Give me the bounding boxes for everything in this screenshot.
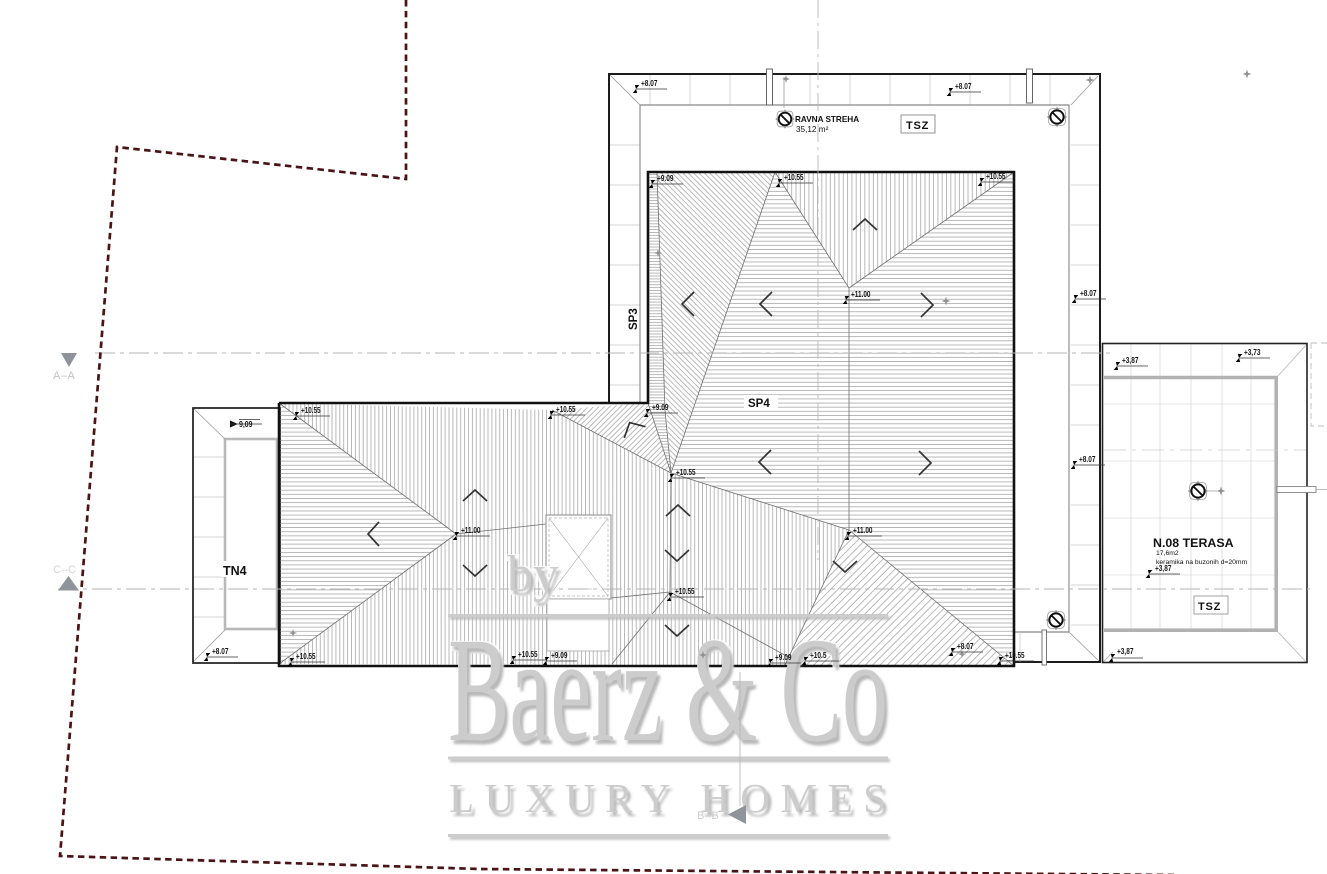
svg-text:+10.55: +10.55: [301, 406, 321, 415]
svg-text:A–A: A–A: [53, 370, 75, 382]
svg-text:9,09: 9,09: [239, 420, 253, 429]
svg-text:SP3: SP3: [628, 308, 640, 330]
svg-text:+8.07: +8.07: [1079, 455, 1096, 464]
svg-text:by: by: [507, 546, 559, 603]
svg-text:35,12 m²: 35,12 m²: [796, 125, 829, 134]
svg-text:TN4: TN4: [223, 564, 247, 578]
svg-text:+10.55: +10.55: [518, 650, 538, 659]
svg-text:+10.55: +10.55: [986, 172, 1006, 181]
svg-text:+10.55: +10.55: [296, 652, 316, 661]
svg-text:+11.00: +11.00: [851, 290, 871, 299]
svg-text:+3,87: +3,87: [1117, 647, 1134, 656]
svg-text:+10.5: +10.5: [810, 651, 827, 660]
svg-text:+10.55: +10.55: [784, 173, 804, 182]
svg-text:+10.55: +10.55: [1005, 651, 1025, 660]
svg-text:+10.55: +10.55: [676, 468, 696, 477]
svg-text:+9.09: +9.09: [775, 653, 792, 662]
svg-text:TSZ: TSZ: [906, 120, 929, 132]
svg-text:17,6m2: 17,6m2: [1156, 550, 1179, 557]
svg-text:+8.07: +8.07: [212, 647, 229, 656]
svg-text:N.08 TERASA: N.08 TERASA: [1153, 536, 1234, 550]
svg-text:+8.07: +8.07: [955, 82, 972, 91]
svg-text:+10.55: +10.55: [675, 587, 695, 596]
svg-text:+9.09: +9.09: [657, 174, 674, 183]
svg-text:+8.07: +8.07: [1080, 289, 1097, 298]
svg-text:SP4: SP4: [748, 398, 770, 410]
svg-text:+8.07: +8.07: [641, 79, 658, 88]
svg-text:+3,87: +3,87: [1122, 356, 1139, 365]
svg-text:+3,73: +3,73: [1244, 348, 1261, 357]
svg-text:+3,87: +3,87: [1155, 564, 1172, 573]
svg-text:TSZ: TSZ: [1198, 601, 1221, 613]
svg-text:+10.55: +10.55: [556, 405, 576, 414]
svg-text:+11.00: +11.00: [853, 526, 873, 535]
svg-text:RAVNA STREHA: RAVNA STREHA: [795, 115, 859, 124]
svg-text:+9.09: +9.09: [551, 651, 568, 660]
svg-text:C–C: C–C: [53, 564, 77, 576]
svg-text:B–B: B–B: [697, 810, 719, 822]
svg-text:+9.09: +9.09: [652, 403, 669, 412]
svg-text:+8.07: +8.07: [957, 642, 974, 651]
svg-text:+11.00: +11.00: [461, 526, 481, 535]
svg-text:Baerz & Co: Baerz & Co: [448, 607, 888, 773]
